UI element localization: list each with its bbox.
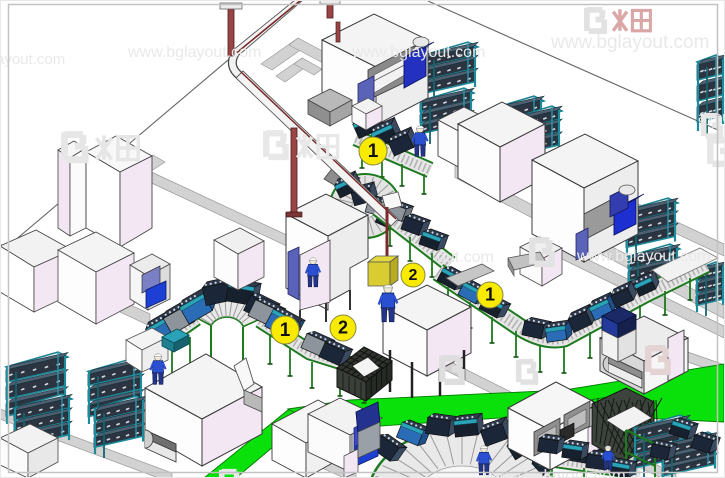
svg-text:www.bglayout.com: www.bglayout.com <box>351 44 485 61</box>
svg-text:www.bglayout.com: www.bglayout.com <box>576 248 710 265</box>
svg-text:ayout.com: ayout.com <box>0 51 65 68</box>
svg-text:1: 1 <box>485 284 495 304</box>
svg-text:www.bglayout.com: www.bglayout.com <box>550 32 709 53</box>
svg-text:2: 2 <box>338 317 348 337</box>
svg-text:1: 1 <box>368 141 379 162</box>
svg-text:www.bglayout.com: www.bglayout.com <box>127 44 261 61</box>
svg-text:1: 1 <box>280 320 291 341</box>
svg-text:out.com: out.com <box>437 249 494 266</box>
svg-text:ayout.com: ayout.com <box>698 109 725 126</box>
svg-text:2: 2 <box>409 267 418 284</box>
